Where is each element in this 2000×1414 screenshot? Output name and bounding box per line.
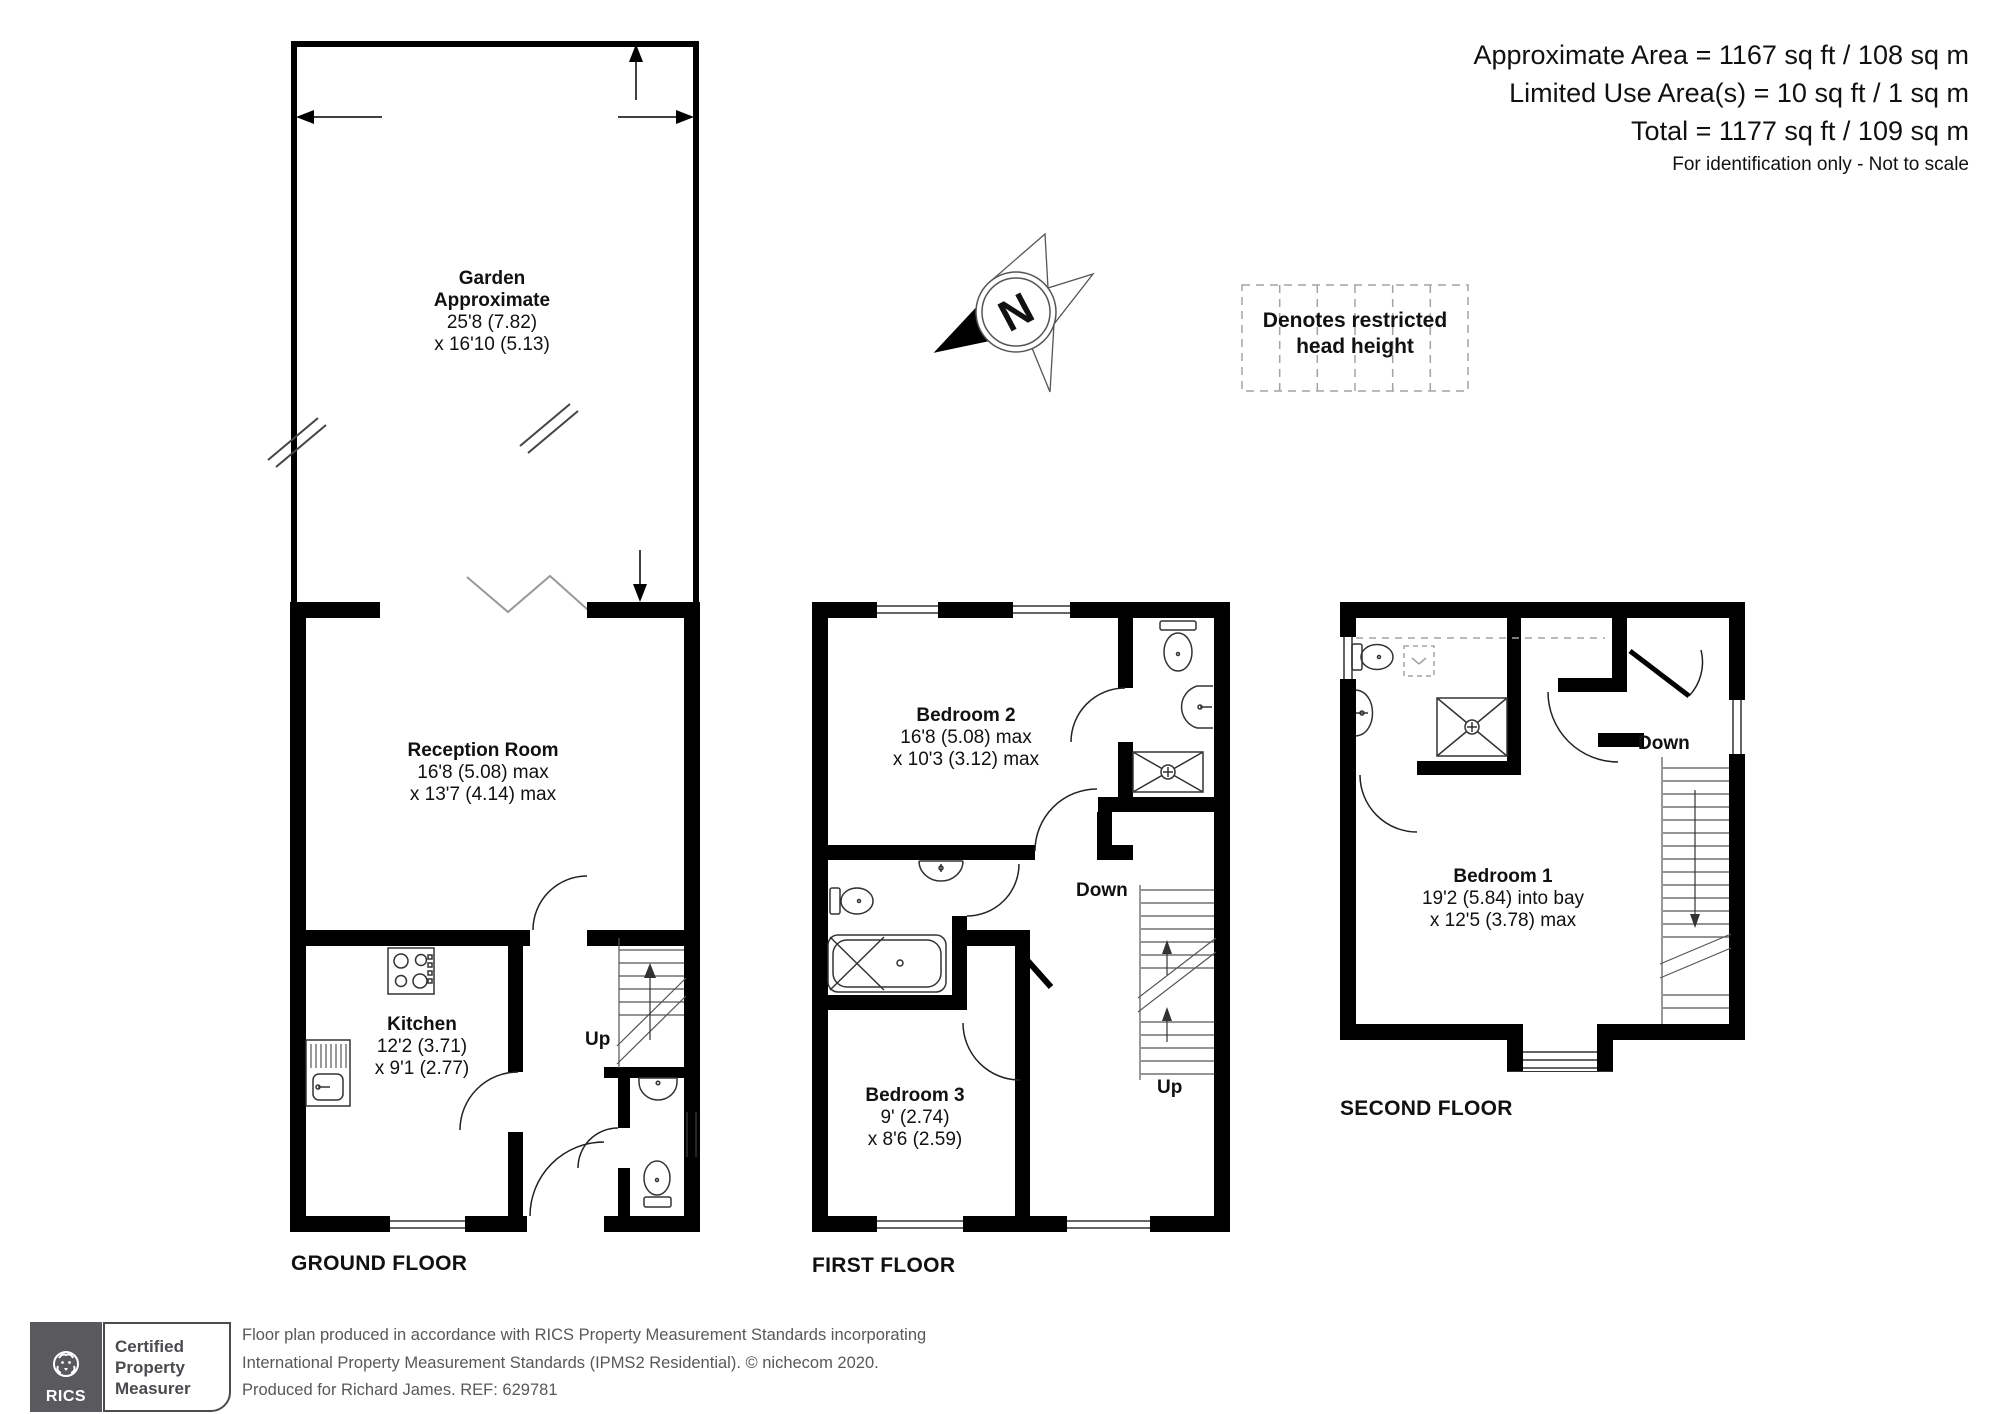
approximate-area: Approximate Area = 1167 sq ft / 108 sq m [1473,36,1969,74]
certified-measurer-badge: Certified Property Measurer [103,1322,231,1412]
staircase-icon [1138,885,1216,1080]
bedroom2-label: Bedroom 2 16'8 (5.08) max x 10'3 (3.12) … [893,705,1039,771]
second-floor-title: SECOND FLOOR [1340,1097,1513,1121]
down-label-second: Down [1638,733,1690,755]
first-floor-title: FIRST FLOOR [812,1254,955,1278]
toilet-icon [644,1161,671,1207]
toilet-icon [1352,644,1393,670]
measure-arrow-right-icon [618,110,694,124]
sink-icon [1182,686,1213,728]
staircase-icon [1660,757,1731,1024]
kitchen-sink-icon [306,1040,350,1106]
shower-icon [1133,752,1203,792]
sink-icon [919,861,963,881]
total-area: Total = 1177 sq ft / 109 sq m [1473,112,1969,150]
restricted-height-box-icon [1404,646,1434,676]
bath-icon [828,935,946,992]
measure-arrow-down-icon [633,550,647,602]
restricted-legend-label: Denotes restricted head height [1263,308,1447,360]
rics-lion-icon [49,1348,83,1388]
kitchen-label: Kitchen 12'2 (3.71) x 9'1 (2.77) [375,1014,469,1080]
limited-use-area: Limited Use Area(s) = 10 sq ft / 1 sq m [1473,74,1969,112]
sink-icon [639,1078,677,1100]
identification-note: For identification only - Not to scale [1473,154,1969,176]
ground-floor-title: GROUND FLOOR [291,1252,467,1276]
opening-zigzag-icon [467,576,588,612]
second-floor-plan [1340,602,1745,1072]
toilet-icon [1160,621,1196,671]
measure-arrow-up-icon [629,44,643,100]
shower-icon [1437,698,1507,756]
footer-line-2: International Property Measurement Stand… [242,1350,926,1378]
staircase-icon [617,938,686,1068]
toilet-icon [830,888,873,914]
area-summary: Approximate Area = 1167 sq ft / 108 sq m… [1473,36,1969,176]
garden-label: Garden Approximate 25'8 (7.82) x 16'10 (… [434,268,550,356]
sink-icon [1356,690,1373,736]
bedroom1-label: Bedroom 1 19'2 (5.84) into bay x 12'5 (3… [1422,866,1584,932]
door-leaf-icon [1630,651,1689,696]
reception-room-label: Reception Room 16'8 (5.08) max x 13'7 (4… [408,740,559,806]
compass-icon: N [935,234,1093,392]
bedroom3-label: Bedroom 3 9' (2.74) x 8'6 (2.59) [865,1085,964,1151]
hob-icon [388,948,434,994]
footer-line-1: Floor plan produced in accordance with R… [242,1322,926,1350]
down-label-first: Down [1076,880,1128,902]
rics-wordmark: RICS [46,1388,86,1406]
measure-arrow-left-icon [296,110,382,124]
footer-line-3: Produced for Richard James. REF: 629781 [242,1377,926,1405]
ground-floor-plan [290,602,700,1232]
up-label-first: Up [1157,1077,1182,1099]
up-label-ground: Up [585,1029,610,1051]
window-icon [390,1112,696,1228]
rics-logo: RICS [30,1322,102,1412]
floorplan-page: N Approximate Area = 1167 sq ft / 108 sq… [0,0,2000,1414]
footer-disclaimer: Floor plan produced in accordance with R… [242,1322,926,1405]
break-mark-icon [268,404,578,467]
